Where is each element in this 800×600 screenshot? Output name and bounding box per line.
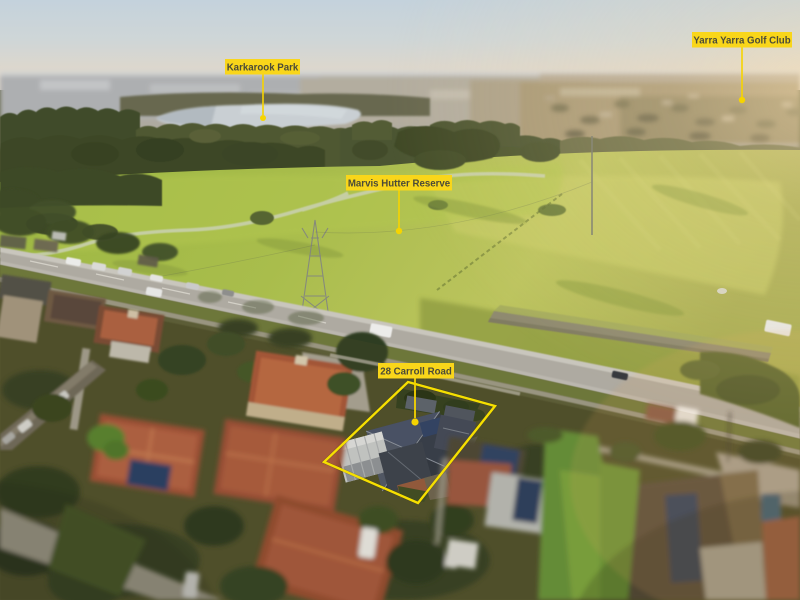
svg-text:Marvis Hutter Reserve: Marvis Hutter Reserve [348, 179, 451, 190]
svg-text:28 Carroll Road: 28 Carroll Road [380, 367, 452, 378]
svg-text:Yarra Yarra Golf Club: Yarra Yarra Golf Club [693, 36, 790, 47]
svg-text:Karkarook Park: Karkarook Park [227, 63, 299, 74]
